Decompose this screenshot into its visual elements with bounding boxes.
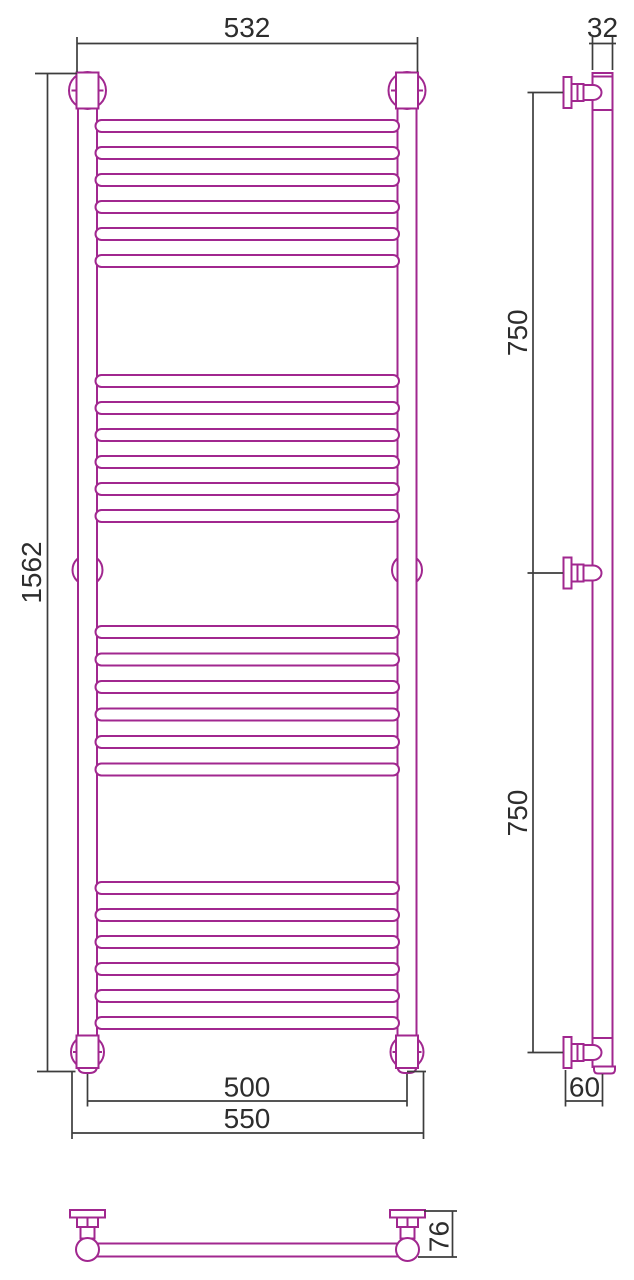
bracket-flange — [390, 1210, 425, 1218]
rung — [96, 483, 400, 495]
bracket-neck — [401, 1227, 415, 1239]
rung — [96, 375, 400, 387]
bracket-cap — [584, 566, 602, 581]
bracket-neck — [81, 1227, 95, 1239]
rung — [96, 681, 400, 693]
rung — [96, 147, 400, 159]
rung — [96, 1017, 400, 1029]
bracket-flange — [564, 558, 572, 589]
dim-76-label: 76 — [424, 1221, 455, 1252]
rung — [96, 990, 400, 1002]
bracket-cap — [584, 1045, 602, 1060]
dim-32-label: 32 — [587, 12, 618, 43]
dim-1562-label: 1562 — [16, 541, 47, 603]
vertical-post — [398, 75, 417, 1068]
rung — [96, 201, 400, 213]
post-section-circle — [396, 1238, 419, 1261]
dim-750-upper-label: 750 — [502, 309, 533, 356]
top-view-bar — [88, 1244, 407, 1257]
front-view-product — [69, 72, 426, 1073]
top-view-product — [70, 1210, 425, 1261]
rung — [96, 626, 400, 638]
drawing-canvas: 532 1562 500 550 32 750 750 — [0, 0, 634, 1280]
rung — [96, 456, 400, 468]
rung — [96, 228, 400, 240]
rung — [96, 736, 400, 748]
rung — [96, 909, 400, 921]
rung — [96, 764, 400, 776]
bottom-collar — [77, 1036, 99, 1069]
technical-drawing: 532 1562 500 550 32 750 750 — [0, 0, 634, 1280]
dim-60-label: 60 — [569, 1072, 600, 1103]
rung — [96, 709, 400, 721]
dim-500-label: 500 — [224, 1072, 271, 1103]
rung — [96, 429, 400, 441]
rung — [96, 936, 400, 948]
side-view-product — [564, 73, 616, 1074]
rung — [96, 882, 400, 894]
bracket-flange — [564, 77, 572, 108]
rung — [96, 174, 400, 186]
dim-750-lower-label: 750 — [502, 790, 533, 837]
rung — [96, 963, 400, 975]
bracket-flange — [70, 1210, 105, 1218]
post-section-circle — [76, 1238, 99, 1261]
rung — [96, 510, 400, 522]
rung — [96, 654, 400, 666]
dim-550-label: 550 — [224, 1103, 271, 1134]
dim-532-label: 532 — [224, 12, 271, 43]
bracket-flange — [564, 1037, 572, 1068]
top-collar — [396, 73, 418, 109]
top-collar — [77, 73, 99, 109]
rung — [96, 255, 400, 267]
rung — [96, 402, 400, 414]
rung — [96, 120, 400, 132]
bottom-collar — [396, 1036, 418, 1069]
vertical-post — [78, 75, 97, 1068]
bracket-cap — [584, 85, 602, 100]
